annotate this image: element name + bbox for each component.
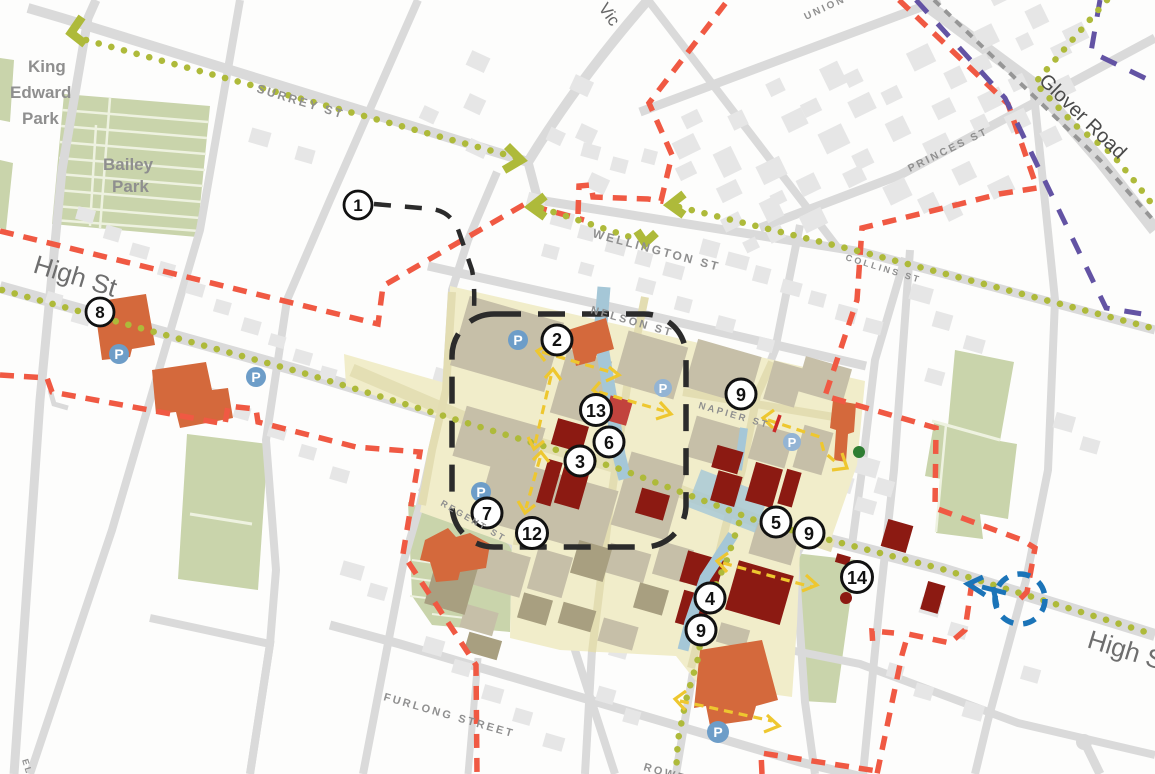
svg-text:1: 1 <box>353 196 362 215</box>
svg-text:P: P <box>713 724 722 740</box>
svg-text:5: 5 <box>771 513 781 533</box>
svg-text:9: 9 <box>696 621 706 641</box>
svg-text:8: 8 <box>95 303 104 322</box>
svg-text:Edward: Edward <box>10 83 71 102</box>
svg-text:14: 14 <box>847 568 867 588</box>
svg-text:2: 2 <box>552 330 562 350</box>
svg-text:Bailey: Bailey <box>103 155 154 174</box>
svg-text:P: P <box>788 435 797 450</box>
svg-text:9: 9 <box>804 524 814 544</box>
svg-text:9: 9 <box>736 385 746 405</box>
svg-text:13: 13 <box>586 401 606 421</box>
svg-text:P: P <box>513 332 522 348</box>
svg-text:3: 3 <box>575 452 585 472</box>
svg-text:Park: Park <box>22 109 59 128</box>
svg-text:4: 4 <box>705 589 715 609</box>
svg-text:King: King <box>28 57 66 76</box>
svg-text:P: P <box>114 346 123 362</box>
svg-text:12: 12 <box>522 524 542 544</box>
svg-text:6: 6 <box>604 433 614 453</box>
svg-text:Park: Park <box>112 177 149 196</box>
svg-text:P: P <box>251 369 260 385</box>
svg-text:P: P <box>659 381 668 396</box>
